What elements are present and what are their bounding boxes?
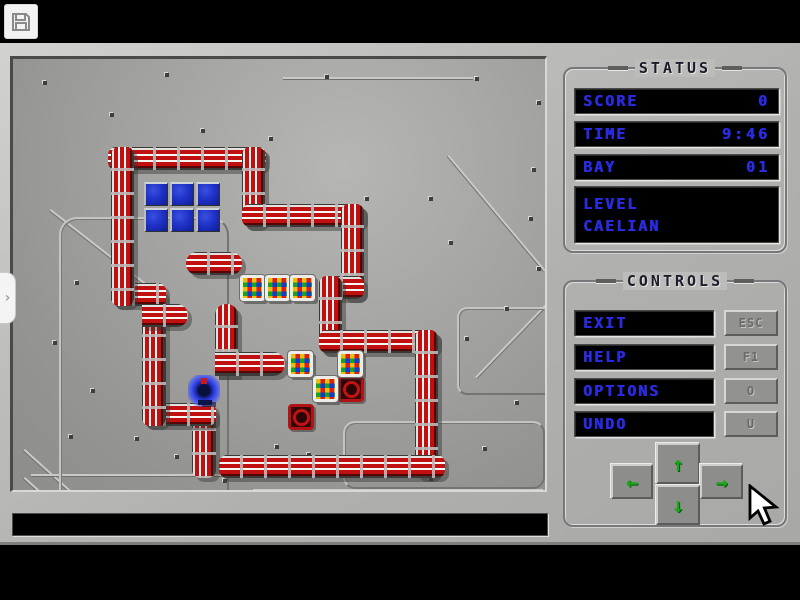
target-water-tile — [170, 182, 194, 206]
main-area: › STATUS SCORE 0 TIME 9:46 BAY 01 — [0, 43, 800, 545]
rivet — [69, 435, 73, 439]
target-water-tile — [170, 208, 194, 232]
game-area[interactable] — [10, 56, 547, 492]
maze-wall — [219, 455, 445, 478]
target-pad — [288, 404, 314, 430]
rivet — [269, 137, 273, 141]
crate — [288, 351, 313, 377]
rivet — [110, 113, 114, 117]
side-drawer-tab[interactable]: › — [0, 272, 16, 324]
target-water-tile — [196, 182, 220, 206]
help-button[interactable]: HELP — [574, 344, 714, 370]
arrow-right-icon: → — [715, 470, 727, 494]
rivet — [43, 81, 47, 85]
save-button[interactable] — [4, 4, 38, 39]
target-water-tile — [144, 182, 168, 206]
time-value: 9:46 — [722, 125, 770, 143]
maze-wall — [111, 147, 134, 306]
time-label: TIME — [583, 125, 627, 143]
rivet — [475, 77, 479, 81]
floor-panel — [457, 307, 547, 395]
arrow-up-icon: ↑ — [672, 452, 684, 476]
exit-label: EXIT — [583, 314, 627, 332]
dpad-right-button[interactable]: → — [700, 464, 743, 499]
exit-button[interactable]: EXIT — [574, 310, 714, 336]
rivet — [275, 445, 279, 449]
dpad-left-button[interactable]: ← — [611, 464, 653, 499]
floppy-disk-icon — [10, 11, 32, 33]
controls-panel: CONTROLS EXIT ESC HELP F1 OPTIONS O UNDO… — [563, 280, 787, 527]
rivet — [325, 75, 329, 79]
rivet — [75, 281, 79, 285]
rivet — [165, 73, 169, 77]
undo-keycap[interactable]: U — [724, 411, 778, 437]
bay-display: BAY 01 — [574, 154, 779, 180]
controls-panel-title: CONTROLS — [565, 272, 785, 290]
maze-wall — [142, 304, 188, 327]
rivet — [201, 129, 205, 133]
maze-wall — [186, 252, 242, 275]
rivet — [515, 401, 519, 405]
rivet — [449, 241, 453, 245]
rivet — [365, 197, 369, 201]
help-label: HELP — [583, 348, 627, 366]
rivet — [532, 168, 536, 172]
crate — [265, 275, 290, 301]
rivet — [529, 217, 533, 221]
options-button[interactable]: OPTIONS — [574, 378, 714, 404]
arrow-left-icon: ← — [626, 470, 638, 494]
undo-button[interactable]: UNDO — [574, 411, 714, 437]
target-water-tile — [144, 208, 168, 232]
top-bar — [0, 0, 800, 43]
exit-keycap[interactable]: ESC — [724, 310, 778, 336]
bay-value: 01 — [746, 158, 770, 176]
rivet — [483, 447, 487, 451]
level-display: LEVEL CAELIAN — [574, 186, 779, 243]
rivet — [223, 479, 227, 483]
floor-etch-line — [283, 77, 473, 79]
floor-etch-line — [253, 489, 543, 491]
rivet — [537, 267, 541, 271]
level-name: CAELIAN — [583, 217, 660, 235]
title-dash — [722, 66, 742, 70]
level-label: LEVEL — [583, 195, 638, 213]
score-label: SCORE — [583, 92, 638, 110]
options-keycap[interactable]: O — [724, 378, 778, 404]
maze-wall — [215, 352, 285, 376]
status-panel: STATUS SCORE 0 TIME 9:46 BAY 01 LEVEL CA… — [563, 67, 787, 253]
bay-label: BAY — [583, 158, 616, 176]
rivet — [505, 307, 509, 311]
options-label: OPTIONS — [583, 382, 660, 400]
undo-label: UNDO — [583, 415, 627, 433]
score-display: SCORE 0 — [574, 88, 779, 114]
crate — [313, 376, 338, 402]
rivet — [135, 437, 139, 441]
rivet — [537, 101, 541, 105]
score-value: 0 — [758, 92, 770, 110]
crate — [290, 275, 315, 301]
status-panel-title: STATUS — [565, 59, 785, 77]
help-keycap[interactable]: F1 — [724, 344, 778, 370]
crate — [240, 275, 265, 301]
status-title-text: STATUS — [635, 59, 715, 77]
title-dash — [734, 279, 754, 283]
arrow-down-icon: ↓ — [672, 493, 684, 517]
floor-etch-line — [447, 155, 545, 271]
target-pad — [338, 376, 364, 402]
message-bar — [12, 513, 548, 536]
rivet — [91, 389, 95, 393]
title-dash — [596, 279, 616, 283]
rivet — [465, 337, 469, 341]
rivet — [53, 341, 57, 345]
app-window: › STATUS SCORE 0 TIME 9:46 BAY 01 — [0, 0, 800, 600]
controls-title-text: CONTROLS — [623, 272, 727, 290]
rivet — [175, 455, 179, 459]
chevron-right-icon: › — [3, 290, 11, 306]
bottom-bar — [0, 545, 800, 600]
target-water-tile — [196, 208, 220, 232]
dpad-down-button[interactable]: ↓ — [656, 485, 700, 525]
player-character — [188, 375, 220, 407]
title-dash — [608, 66, 628, 70]
crate — [338, 351, 363, 377]
time-display: TIME 9:46 — [574, 121, 779, 147]
rivet — [429, 197, 433, 201]
dpad-up-button[interactable]: ↑ — [656, 443, 700, 484]
